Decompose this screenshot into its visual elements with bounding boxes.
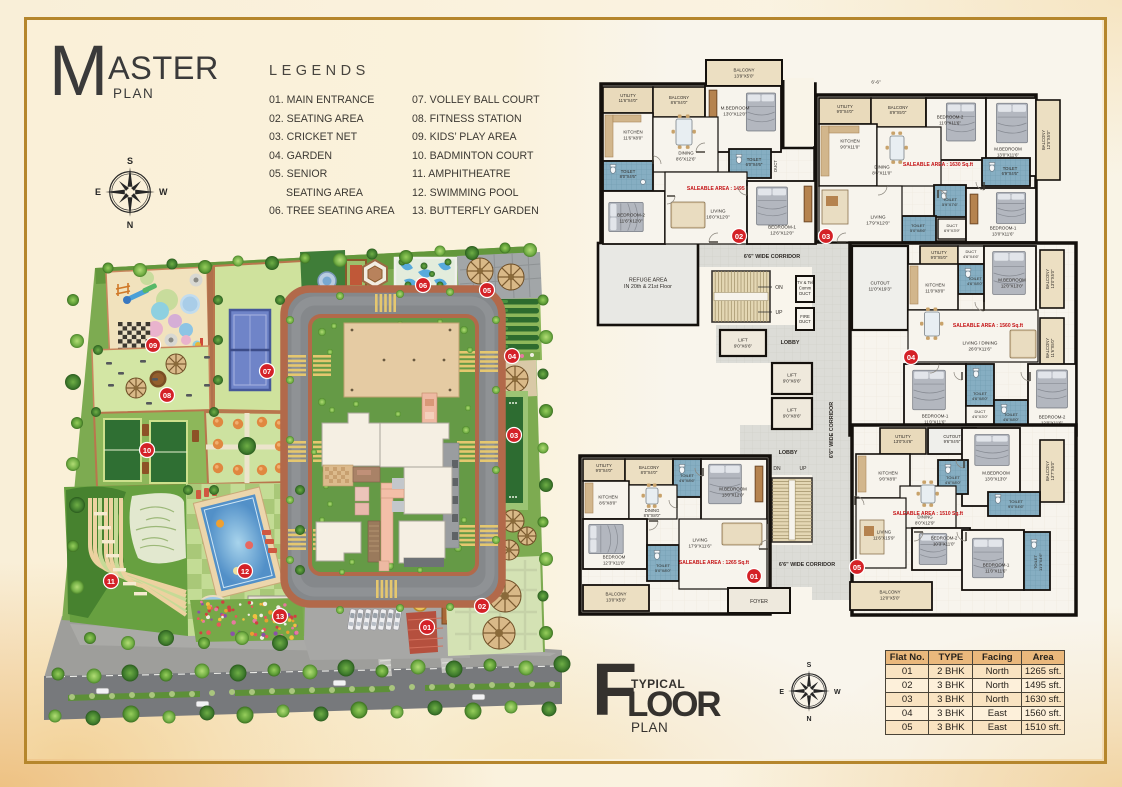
svg-text:LIVING: LIVING — [692, 538, 707, 543]
svg-text:LOBBY: LOBBY — [781, 340, 800, 346]
svg-text:5'9"X7'6": 5'9"X7'6" — [942, 202, 959, 207]
svg-text:BEDROOM-2: BEDROOM-2 — [937, 115, 964, 120]
svg-text:SALEABLE AREA : 1265 Sq.ft: SALEABLE AREA : 1265 Sq.ft — [679, 560, 750, 566]
svg-text:8'9"X5'0": 8'9"X5'0" — [890, 110, 907, 115]
svg-text:M.BEDROOM: M.BEDROOM — [721, 106, 750, 111]
svg-text:LOBBY: LOBBY — [779, 450, 798, 456]
svg-text:KITCHEN: KITCHEN — [925, 283, 944, 288]
svg-text:5'0"X8'0": 5'0"X8'0" — [655, 568, 672, 573]
svg-text:IN 20th & 21st Floor: IN 20th & 21st Floor — [624, 284, 672, 290]
svg-text:BALCONY: BALCONY — [1041, 130, 1046, 150]
svg-text:LIFT: LIFT — [738, 338, 748, 343]
svg-text:9'0"X4'0": 9'0"X4'0" — [837, 109, 854, 114]
svg-text:10: 10 — [143, 446, 151, 455]
svg-text:CUTOUT: CUTOUT — [943, 434, 961, 439]
svg-text:TV & Tel: TV & Tel — [797, 280, 813, 285]
svg-text:8'6"X11'0": 8'6"X11'0" — [872, 170, 892, 175]
svg-text:4'6"X4'6": 4'6"X4'6" — [963, 254, 980, 259]
svg-text:02: 02 — [478, 602, 486, 611]
svg-text:6'6" WIDE CORRIDOR: 6'6" WIDE CORRIDOR — [829, 402, 835, 458]
svg-text:N: N — [806, 716, 811, 723]
svg-text:12'5"X5'0": 12'5"X5'0" — [1046, 130, 1051, 150]
svg-text:DUCT: DUCT — [773, 160, 778, 172]
svg-text:13: 13 — [276, 612, 284, 621]
svg-text:10'3"X11'0": 10'3"X11'0" — [933, 541, 955, 546]
svg-text:6'0"X4'6": 6'0"X4'6" — [746, 162, 763, 167]
svg-text:12'0"X13'0": 12'0"X13'0" — [1001, 283, 1024, 288]
svg-text:11'6"X5'0": 11'6"X5'0" — [1050, 338, 1055, 357]
svg-text:UTILITY: UTILITY — [931, 250, 947, 255]
svg-text:13'0"X12'0": 13'0"X12'0" — [722, 492, 745, 497]
svg-text:04: 04 — [508, 352, 517, 361]
svg-text:4'6"X8'0": 4'6"X8'0" — [967, 281, 984, 286]
svg-text:4'6"X8'0": 4'6"X8'0" — [972, 396, 989, 401]
svg-text:12'6"X12'0": 12'6"X12'0" — [770, 231, 794, 236]
svg-text:26'0"X11'6": 26'0"X11'6" — [968, 347, 991, 352]
svg-text:13'0"X5'0": 13'0"X5'0" — [606, 597, 626, 602]
svg-text:11'6"X4'0": 11'6"X4'0" — [619, 98, 638, 103]
svg-text:16'0"X12'0": 16'0"X12'0" — [706, 215, 730, 220]
svg-text:UTILITY: UTILITY — [596, 463, 612, 468]
svg-text:UTILITY: UTILITY — [895, 434, 911, 439]
svg-text:UTILITY: UTILITY — [837, 104, 853, 109]
svg-text:DUCT: DUCT — [799, 319, 811, 324]
svg-text:BALCONY: BALCONY — [639, 465, 659, 470]
svg-text:BALCONY: BALCONY — [888, 105, 908, 110]
svg-text:11'0"X19'3": 11'0"X19'3" — [868, 287, 891, 292]
svg-text:DN: DN — [773, 466, 781, 472]
svg-text:8'6"X4'0": 8'6"X4'0" — [671, 100, 688, 105]
svg-text:09: 09 — [149, 341, 157, 350]
svg-text:BEDROOM-2: BEDROOM-2 — [931, 536, 958, 541]
svg-text:W: W — [159, 187, 168, 197]
svg-text:4'6"X8'0": 4'6"X8'0" — [945, 480, 962, 485]
svg-text:S: S — [807, 662, 812, 669]
svg-text:BEDROOM-2: BEDROOM-2 — [617, 213, 645, 218]
svg-text:8'6"X8'0": 8'6"X8'0" — [599, 500, 617, 505]
svg-text:6'-6": 6'-6" — [871, 80, 881, 85]
svg-text:M.BEDROOM: M.BEDROOM — [998, 278, 1026, 283]
svg-text:BALCONY: BALCONY — [669, 95, 689, 100]
svg-text:13'0"X13'0": 13'0"X13'0" — [985, 476, 1008, 481]
svg-text:BALCONY: BALCONY — [606, 592, 627, 597]
svg-text:9'0"X6'6": 9'0"X6'6" — [783, 379, 802, 384]
svg-text:KITCHEN: KITCHEN — [598, 495, 617, 500]
svg-text:TOILET: TOILET — [1003, 166, 1018, 171]
svg-text:BEDROOM-2: BEDROOM-2 — [1039, 415, 1066, 420]
svg-text:04: 04 — [907, 353, 916, 362]
svg-text:4'6"X8'6": 4'6"X8'6" — [679, 478, 696, 483]
svg-text:SALEABLE AREA : 1560 Sq.ft: SALEABLE AREA : 1560 Sq.ft — [953, 323, 1024, 329]
svg-text:UP: UP — [800, 466, 808, 472]
svg-text:9'0"X4'0": 9'0"X4'0" — [596, 468, 613, 473]
svg-text:9'0"X11'0": 9'0"X11'0" — [840, 144, 860, 149]
svg-text:DINING: DINING — [645, 508, 660, 513]
svg-text:BEDROOM-1: BEDROOM-1 — [922, 414, 949, 419]
svg-text:12: 12 — [241, 567, 249, 576]
svg-text:11'3"X4'6": 11'3"X4'6" — [1038, 552, 1043, 570]
svg-text:LIFT: LIFT — [787, 373, 797, 378]
svg-text:13'0"X5'0": 13'0"X5'0" — [1050, 269, 1055, 289]
svg-text:S: S — [127, 156, 133, 166]
svg-text:BEDROOM-1: BEDROOM-1 — [768, 225, 796, 230]
svg-text:11'0"X8'0": 11'0"X8'0" — [925, 288, 945, 293]
svg-text:05: 05 — [483, 286, 491, 295]
svg-text:07: 07 — [263, 367, 271, 376]
svg-text:W: W — [834, 689, 841, 696]
svg-text:01: 01 — [750, 572, 758, 581]
svg-text:LIFT: LIFT — [787, 408, 797, 413]
svg-text:11'6"X15'9": 11'6"X15'9" — [873, 535, 895, 540]
svg-text:BALCONY: BALCONY — [734, 68, 755, 73]
svg-text:KITCHEN: KITCHEN — [878, 471, 897, 476]
svg-text:11'0"X11'6": 11'0"X11'6" — [939, 120, 961, 125]
svg-text:Comm: Comm — [799, 286, 812, 291]
svg-text:E: E — [95, 187, 101, 197]
svg-text:6'9"X3'9": 6'9"X3'9" — [944, 228, 961, 233]
svg-text:13'7"X5'0": 13'7"X5'0" — [1050, 461, 1055, 481]
svg-text:11: 11 — [107, 577, 115, 586]
svg-text:M.BEDROOM: M.BEDROOM — [982, 471, 1010, 476]
svg-text:TOILET: TOILET — [621, 169, 636, 174]
svg-text:17'9"X12'0": 17'9"X12'0" — [866, 221, 890, 226]
svg-text:LIVING: LIVING — [870, 215, 885, 220]
svg-text:9'0"X5'0": 9'0"X5'0" — [931, 255, 948, 260]
svg-text:13'0"X11'6": 13'0"X11'6" — [992, 231, 1014, 236]
svg-text:M.BEDROOM: M.BEDROOM — [719, 487, 747, 492]
svg-text:TOILET: TOILET — [747, 157, 762, 162]
svg-text:6'9"X4'6": 6'9"X4'6" — [1002, 171, 1019, 176]
svg-text:ON: ON — [775, 285, 783, 291]
svg-text:06: 06 — [419, 281, 427, 290]
svg-text:BALCONY: BALCONY — [1045, 269, 1050, 289]
svg-text:FIRE: FIRE — [800, 314, 810, 319]
svg-text:6'6" WIDE CORRIDOR: 6'6" WIDE CORRIDOR — [779, 562, 835, 568]
svg-text:02: 02 — [735, 232, 743, 241]
svg-text:6'6" WIDE CORRIDOR: 6'6" WIDE CORRIDOR — [744, 254, 800, 260]
svg-text:13'0"X4'6": 13'0"X4'6" — [893, 439, 913, 444]
svg-text:12'3"X11'0": 12'3"X11'0" — [603, 560, 625, 565]
svg-text:BALCONY: BALCONY — [1045, 338, 1050, 358]
svg-text:17'9"X11'6": 17'9"X11'6" — [688, 544, 711, 549]
svg-text:4'6"X3'0": 4'6"X3'0" — [972, 414, 989, 419]
svg-text:08: 08 — [163, 391, 171, 400]
svg-text:8'0"X4'0": 8'0"X4'0" — [641, 470, 658, 475]
svg-text:DINING: DINING — [874, 165, 890, 170]
svg-text:E: E — [779, 689, 784, 696]
svg-text:DINING: DINING — [678, 151, 694, 156]
svg-text:SALEABLE AREA : 1510 Sq.ft: SALEABLE AREA : 1510 Sq.ft — [893, 511, 964, 517]
svg-text:9'0"X4'6": 9'0"X4'6" — [1008, 504, 1025, 509]
svg-text:BEDROOM-1: BEDROOM-1 — [990, 226, 1017, 231]
svg-text:LIVING: LIVING — [877, 530, 892, 535]
svg-text:FOYER: FOYER — [750, 599, 768, 605]
svg-text:11'0"X11'6": 11'0"X11'6" — [985, 568, 1007, 573]
svg-text:KITCHEN: KITCHEN — [840, 139, 859, 144]
svg-text:CUTOUT: CUTOUT — [870, 281, 889, 286]
svg-text:11'6"X8'0": 11'6"X8'0" — [623, 135, 643, 140]
svg-text:KITCHEN: KITCHEN — [623, 130, 642, 135]
svg-text:13'0"X11'6": 13'0"X11'6" — [997, 152, 1019, 157]
svg-text:05: 05 — [853, 563, 861, 572]
svg-text:DUCT: DUCT — [799, 291, 811, 296]
svg-text:8'6"X8'0": 8'6"X8'0" — [644, 513, 661, 518]
svg-text:UP: UP — [776, 310, 784, 316]
svg-text:03: 03 — [822, 232, 830, 241]
svg-text:LIVING / DINING: LIVING / DINING — [963, 341, 998, 346]
svg-text:M.BEDROOM: M.BEDROOM — [994, 147, 1022, 152]
svg-text:UTILITY: UTILITY — [620, 93, 636, 98]
svg-text:BALCONY: BALCONY — [880, 590, 901, 595]
svg-text:BALCONY: BALCONY — [1045, 461, 1050, 481]
svg-text:8'0"X12'9": 8'0"X12'9" — [915, 520, 935, 525]
svg-text:8'6"X12'6": 8'6"X12'6" — [676, 156, 696, 161]
svg-text:9'6"X4'6": 9'6"X4'6" — [944, 439, 961, 444]
svg-text:9'0"X8'6": 9'0"X8'6" — [783, 414, 802, 419]
svg-text:03: 03 — [510, 431, 518, 440]
svg-text:BEDROOM: BEDROOM — [603, 555, 626, 560]
svg-text:11'6"X12'0": 11'6"X12'0" — [619, 219, 642, 224]
svg-text:13'9"X5'0": 13'9"X5'0" — [734, 73, 754, 78]
svg-text:13'0"X12'0": 13'0"X12'0" — [723, 112, 747, 117]
svg-text:REFUGE AREA: REFUGE AREA — [629, 278, 668, 284]
svg-text:8'0"X4'6": 8'0"X4'6" — [620, 174, 637, 179]
svg-text:5'0"X8'6": 5'0"X8'6" — [910, 228, 927, 233]
svg-text:9'0"X6'6": 9'0"X6'6" — [734, 344, 753, 349]
svg-text:9'0"X8'0": 9'0"X8'0" — [879, 476, 897, 481]
svg-text:01: 01 — [423, 623, 431, 632]
svg-text:LIVING: LIVING — [710, 209, 725, 214]
svg-text:BEDROOM-1: BEDROOM-1 — [983, 563, 1010, 568]
svg-text:SALEABLE AREA : 1630 Sq.ft: SALEABLE AREA : 1630 Sq.ft — [903, 162, 974, 168]
svg-text:4'6"X8'0": 4'6"X8'0" — [1003, 417, 1020, 422]
svg-text:12'0"X5'0": 12'0"X5'0" — [880, 595, 900, 600]
